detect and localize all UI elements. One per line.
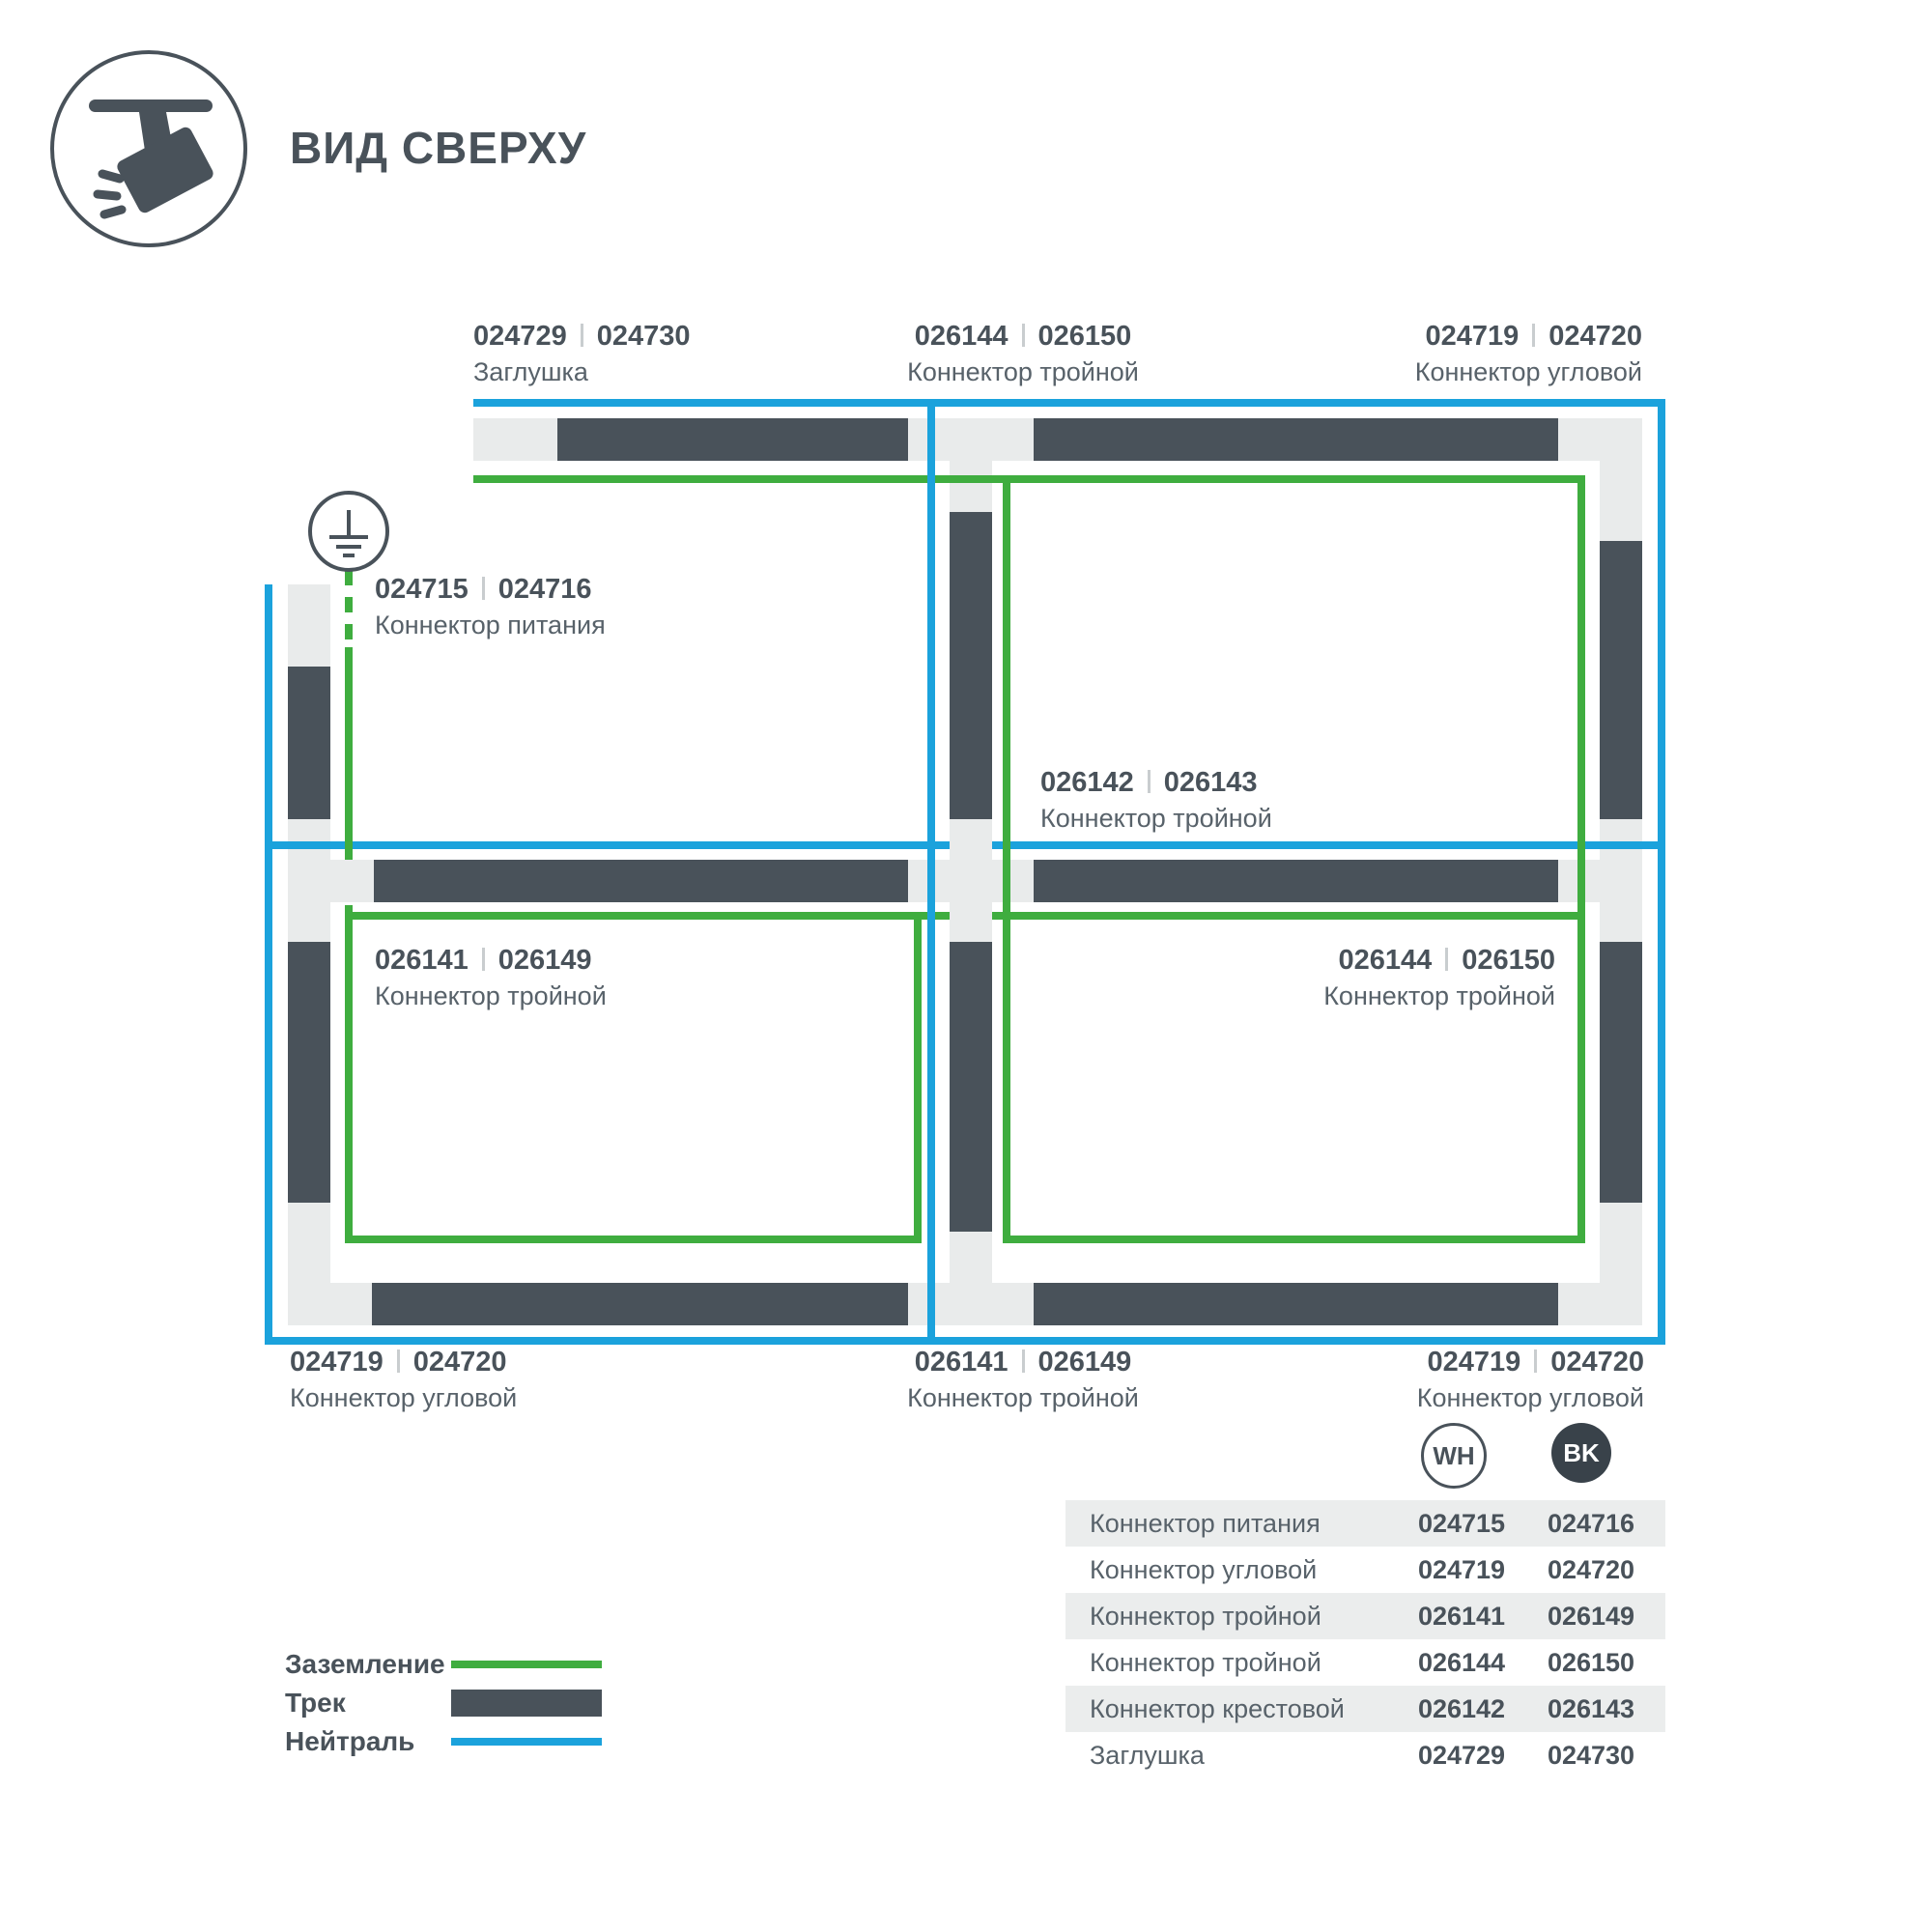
table-row: Коннектор угловой 024719 024720 bbox=[1065, 1547, 1665, 1593]
ground-line bbox=[1003, 1236, 1585, 1243]
code-bk: 026149 bbox=[498, 945, 592, 976]
legend-item-ground: Заземление bbox=[285, 1645, 604, 1684]
ground-line bbox=[473, 475, 1585, 483]
track-segment bbox=[288, 942, 330, 1203]
ground-line bbox=[345, 905, 353, 1243]
track-segment bbox=[1034, 1283, 1558, 1325]
part-name: Коннектор тройной bbox=[1065, 1602, 1397, 1632]
label-tee-left: 026141026149 Коннектор тройной bbox=[375, 943, 607, 1013]
part-name: Коннектор тройной bbox=[1323, 980, 1555, 1013]
legend-item-neutral: Нейтраль bbox=[285, 1722, 604, 1761]
label-end-cap: 024729024730 Заглушка bbox=[473, 319, 691, 389]
ground-line bbox=[1577, 479, 1585, 1243]
code-bk: 024720 bbox=[413, 1347, 507, 1378]
code-bk: 024716 bbox=[1526, 1509, 1656, 1539]
code-wh: 026141 bbox=[375, 945, 469, 976]
corner-connector-bl bbox=[330, 1283, 372, 1325]
code-wh: 024719 bbox=[1397, 1555, 1526, 1585]
track-segment bbox=[1600, 942, 1642, 1203]
neutral-line bbox=[265, 1337, 1665, 1345]
ground-line bbox=[345, 647, 353, 860]
legend-item-track: Трек bbox=[285, 1684, 604, 1722]
divider bbox=[581, 324, 583, 347]
code-bk: 026150 bbox=[1038, 321, 1132, 352]
label-cross-connector: 026142026143 Коннектор тройной bbox=[1040, 765, 1272, 836]
track-segment bbox=[557, 418, 908, 461]
code-bk: 026149 bbox=[1038, 1347, 1132, 1378]
code-wh: 024719 bbox=[1427, 1347, 1520, 1378]
page-title: ВИД СВЕРХУ bbox=[290, 122, 586, 174]
track-segment bbox=[372, 1283, 908, 1325]
code-wh: 024729 bbox=[473, 321, 567, 352]
neutral-line bbox=[1658, 399, 1665, 1345]
neutral-line-swatch bbox=[451, 1738, 602, 1746]
ground-line bbox=[1003, 479, 1010, 1243]
variant-badge-black: BK bbox=[1551, 1423, 1611, 1483]
ground-line-swatch bbox=[451, 1661, 602, 1668]
table-row: Коннектор крестовой 026142 026143 bbox=[1065, 1686, 1665, 1732]
divider bbox=[482, 577, 485, 600]
parts-table: Коннектор питания 024715 024716 Коннекто… bbox=[1065, 1500, 1665, 1778]
code-wh: 026144 bbox=[1397, 1648, 1526, 1678]
label-corner-bl: 024719024720 Коннектор угловой bbox=[290, 1345, 517, 1415]
cross-connector bbox=[950, 819, 992, 942]
code-bk: 026150 bbox=[1462, 945, 1555, 976]
label-tee-right: 026144026150 Коннектор тройной bbox=[1323, 943, 1555, 1013]
track-swatch bbox=[451, 1690, 602, 1717]
neutral-line bbox=[265, 584, 272, 1345]
neutral-line bbox=[473, 399, 1665, 407]
divider bbox=[1148, 770, 1151, 793]
code-wh: 026144 bbox=[915, 321, 1009, 352]
code-wh: 024719 bbox=[290, 1347, 384, 1378]
variant-badge-white: WH bbox=[1421, 1423, 1487, 1489]
code-bk: 024716 bbox=[498, 574, 592, 605]
track-segment bbox=[288, 667, 330, 819]
part-name: Коннектор тройной bbox=[830, 1382, 1216, 1415]
tee-connector-top-stem bbox=[950, 461, 992, 512]
code-bk: 026143 bbox=[1526, 1694, 1656, 1724]
code-bk: 024730 bbox=[597, 321, 691, 352]
divider bbox=[1022, 1350, 1025, 1373]
legend: Заземление Трек Нейтраль bbox=[285, 1645, 604, 1761]
divider bbox=[1534, 1350, 1537, 1373]
part-name: Коннектор угловой bbox=[1417, 1382, 1644, 1415]
track-segment bbox=[1600, 541, 1642, 819]
end-cap-connector bbox=[473, 418, 557, 461]
label-tee-bottom: 026141026149 Коннектор тройной bbox=[830, 1345, 1216, 1415]
label-corner-br: 024719024720 Коннектор угловой bbox=[1417, 1345, 1644, 1415]
part-name: Заглушка bbox=[1065, 1741, 1397, 1771]
divider bbox=[1022, 324, 1025, 347]
label-tee-top: 026144026150 Коннектор тройной bbox=[830, 319, 1216, 389]
code-bk: 024720 bbox=[1550, 1347, 1644, 1378]
track-segment bbox=[374, 860, 908, 902]
divider bbox=[1445, 948, 1448, 971]
divider bbox=[397, 1350, 400, 1373]
power-connector bbox=[288, 584, 330, 667]
code-bk: 026143 bbox=[1164, 767, 1258, 798]
part-name: Коннектор угловой bbox=[290, 1382, 517, 1415]
part-name: Коннектор тройной bbox=[1065, 1648, 1397, 1678]
code-wh: 024715 bbox=[1397, 1509, 1526, 1539]
ground-line-dashed bbox=[345, 570, 353, 647]
code-bk: 024720 bbox=[1548, 321, 1642, 352]
part-name: Коннектор крестовой bbox=[1065, 1694, 1397, 1724]
part-name: Коннектор угловой bbox=[1065, 1555, 1397, 1585]
table-row: Коннектор тройной 026144 026150 bbox=[1065, 1639, 1665, 1686]
label-power-connector: 024715024716 Коннектор питания bbox=[375, 572, 606, 642]
part-name: Коннектор питания bbox=[375, 610, 606, 642]
legend-label: Заземление bbox=[285, 1649, 451, 1680]
corner-connector-tr bbox=[1600, 418, 1642, 541]
ground-symbol-icon bbox=[306, 489, 391, 574]
track-segment bbox=[1034, 418, 1558, 461]
track-segment bbox=[950, 942, 992, 1232]
code-bk: 026149 bbox=[1526, 1602, 1656, 1632]
code-wh: 026141 bbox=[915, 1347, 1009, 1378]
track-segment bbox=[1034, 860, 1558, 902]
divider bbox=[482, 948, 485, 971]
corner-connector-bl bbox=[288, 1203, 330, 1325]
legend-label: Трек bbox=[285, 1688, 451, 1719]
code-bk: 024720 bbox=[1526, 1555, 1656, 1585]
track-light-icon bbox=[46, 46, 251, 251]
tee-connector-right bbox=[1600, 819, 1642, 942]
table-row: Коннектор тройной 026141 026149 bbox=[1065, 1593, 1665, 1639]
part-name: Заглушка bbox=[473, 356, 691, 389]
table-row: Коннектор питания 024715 024716 bbox=[1065, 1500, 1665, 1547]
corner-connector-br bbox=[1558, 1283, 1642, 1325]
code-wh: 024729 bbox=[1397, 1741, 1526, 1771]
ground-line bbox=[345, 1236, 922, 1243]
code-bk: 024730 bbox=[1526, 1741, 1656, 1771]
tee-connector-bottom-stem bbox=[950, 1232, 992, 1283]
code-wh: 024719 bbox=[1425, 321, 1519, 352]
code-bk: 026150 bbox=[1526, 1648, 1656, 1678]
part-name: Коннектор тройной bbox=[1040, 803, 1272, 836]
divider bbox=[1532, 324, 1535, 347]
legend-label: Нейтраль bbox=[285, 1726, 451, 1757]
tee-connector-left bbox=[330, 860, 374, 902]
label-corner-tr: 024719024720 Коннектор угловой bbox=[1415, 319, 1642, 389]
code-wh: 026142 bbox=[1040, 767, 1134, 798]
part-name: Коннектор угловой bbox=[1415, 356, 1642, 389]
part-name: Коннектор тройной bbox=[375, 980, 607, 1013]
code-wh: 026142 bbox=[1397, 1694, 1526, 1724]
track-segment bbox=[950, 512, 992, 819]
code-wh: 026141 bbox=[1397, 1602, 1526, 1632]
table-row: Заглушка 024729 024730 bbox=[1065, 1732, 1665, 1778]
part-name: Коннектор питания bbox=[1065, 1509, 1397, 1539]
tee-connector-left bbox=[288, 819, 330, 942]
page: ВИД СВЕРХУ bbox=[0, 0, 1932, 1932]
part-name: Коннектор тройной bbox=[830, 356, 1216, 389]
neutral-line bbox=[927, 399, 935, 1345]
ground-line bbox=[914, 912, 922, 1243]
code-wh: 026144 bbox=[1338, 945, 1432, 976]
code-wh: 024715 bbox=[375, 574, 469, 605]
